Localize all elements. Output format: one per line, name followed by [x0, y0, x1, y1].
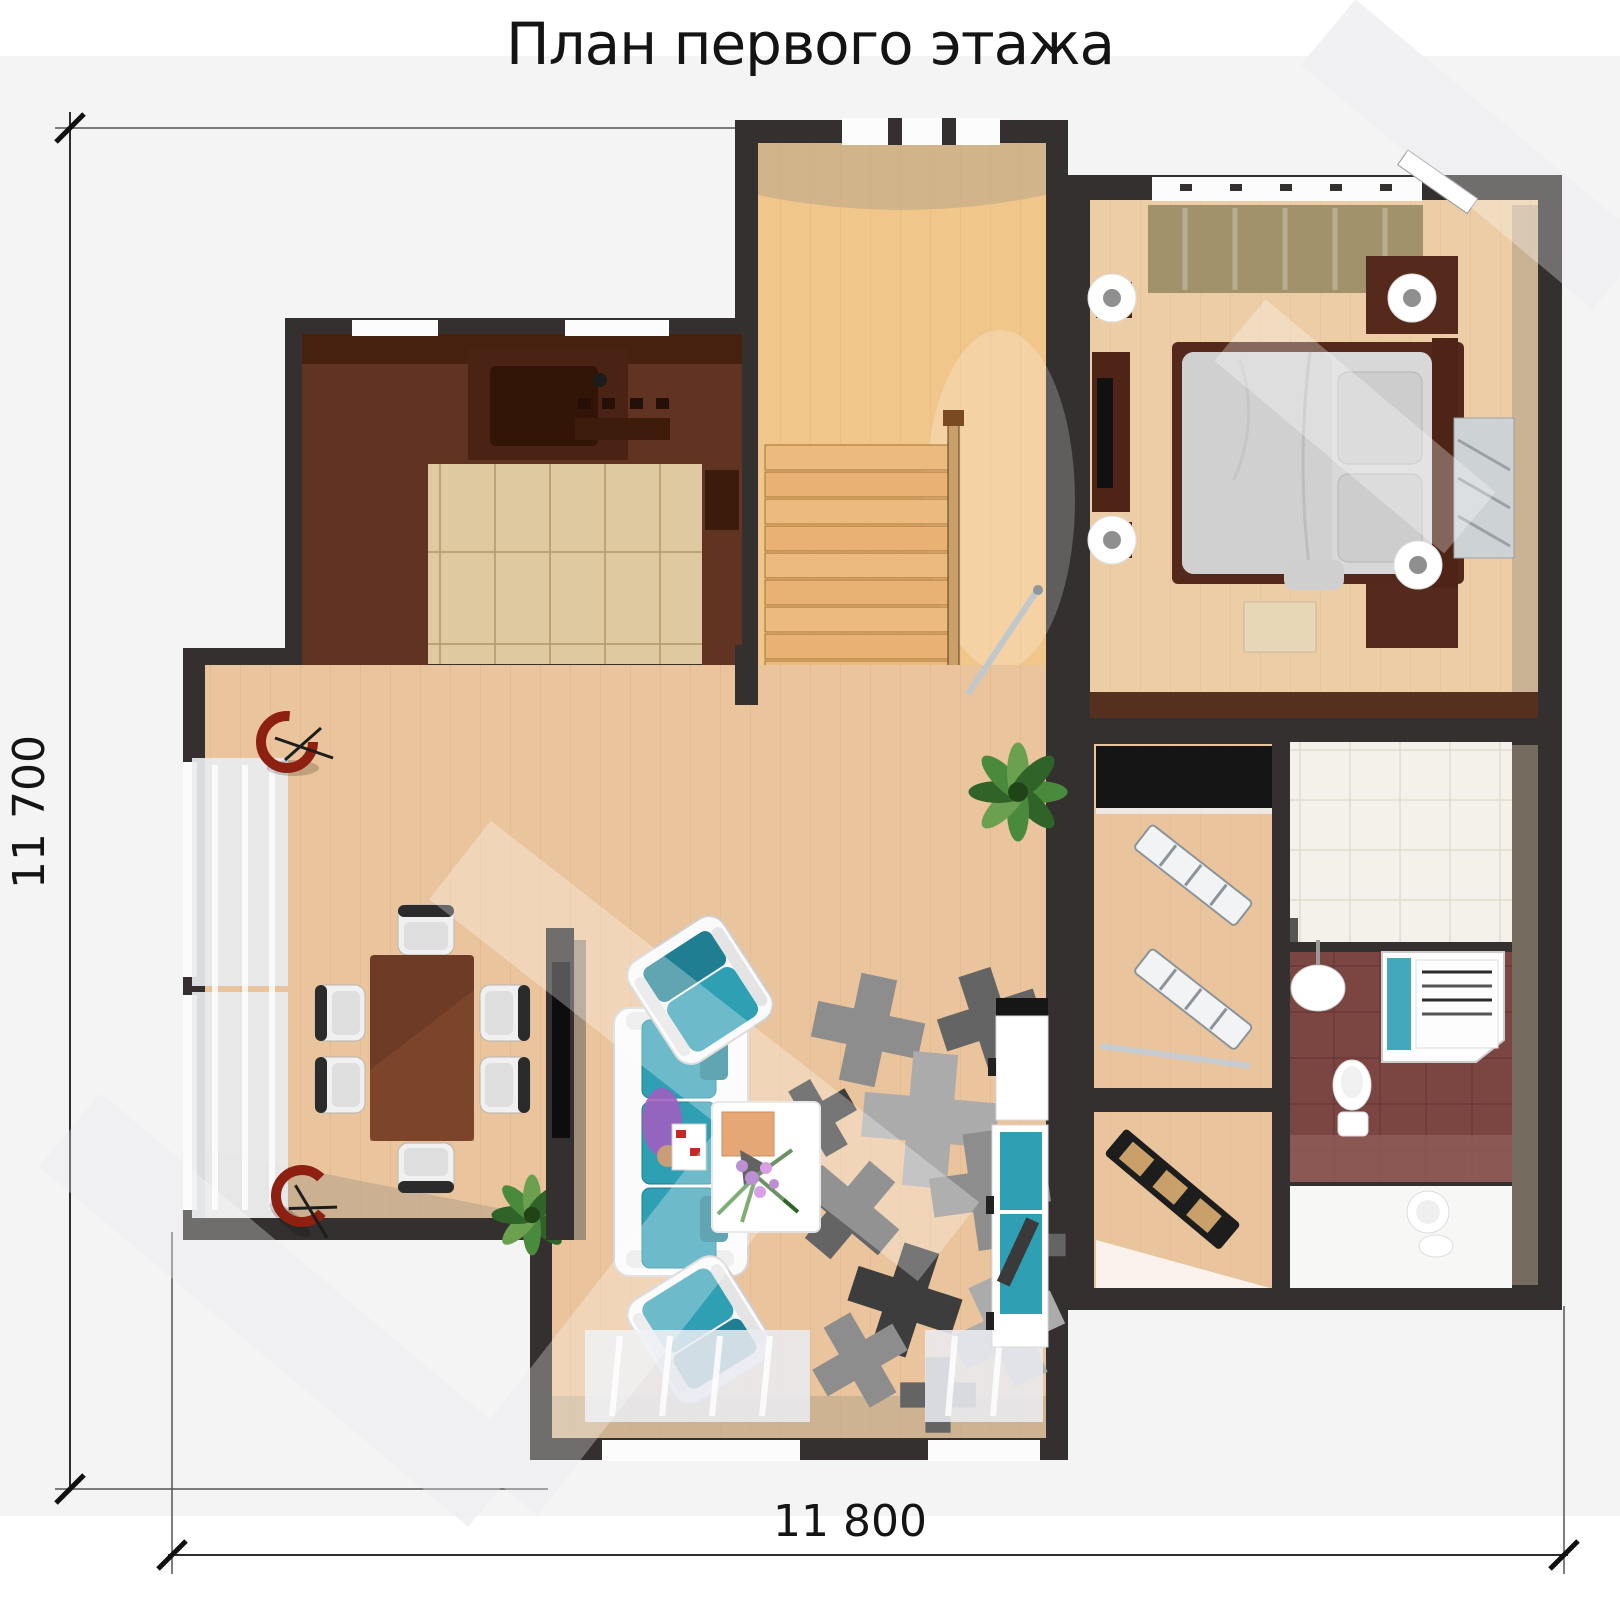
appliance [705, 470, 739, 530]
stair-railing [948, 420, 959, 690]
plant [969, 743, 1068, 842]
stairs [765, 410, 964, 690]
toilet [1333, 1060, 1371, 1136]
page-title: План первого этажа [506, 10, 1114, 78]
stair-window [842, 118, 1000, 145]
kitchen [302, 320, 742, 700]
kitchen-window [352, 320, 438, 336]
wc-room [1290, 1186, 1512, 1288]
dimension-height-label: 11 700 [4, 735, 55, 889]
bedroom-low-cabinet [1090, 692, 1538, 718]
wardrobe [1096, 746, 1272, 808]
floor-plan-canvas: План первого этажа 11 700 11 800 [0, 0, 1620, 1602]
bathtub [1382, 952, 1504, 1062]
floor-plan-page: План первого этажа 11 700 11 800 [0, 0, 1620, 1602]
sink [1291, 965, 1345, 1011]
dimension-width-label: 11 800 [773, 1496, 927, 1547]
hallway-closet [1094, 744, 1272, 1288]
bench [1244, 602, 1316, 652]
bath-rooms [1290, 742, 1538, 1288]
tv [1097, 378, 1113, 488]
bedroom-window [1152, 177, 1422, 201]
window [928, 1440, 1040, 1461]
window [602, 1440, 800, 1461]
kitchen-window [565, 320, 669, 336]
